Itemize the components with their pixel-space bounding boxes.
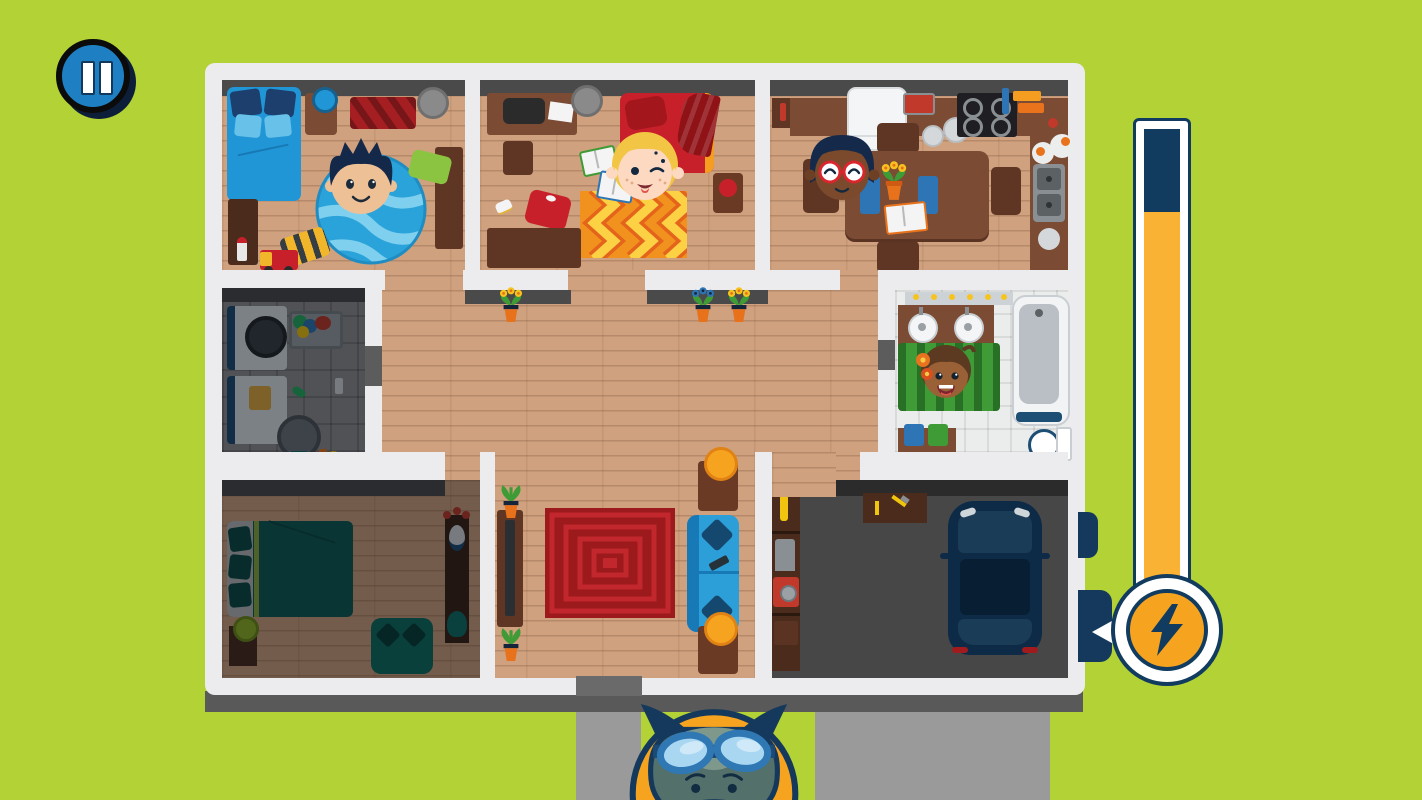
blue-bed <box>227 87 301 201</box>
bed-pillow <box>264 114 292 139</box>
blue-lamp <box>312 87 338 113</box>
driveway <box>815 712 1050 800</box>
interior-wall <box>878 270 1068 290</box>
potted-plant-top <box>498 483 524 519</box>
chair-north <box>877 123 919 153</box>
tv-console <box>497 510 523 627</box>
energy-meter <box>1133 118 1191 600</box>
room-bathroom[interactable] <box>895 290 1068 455</box>
red-striped-mat <box>350 97 416 129</box>
front-door[interactable] <box>576 676 642 696</box>
red-vacuum <box>773 577 799 607</box>
chair-south <box>877 241 919 273</box>
lightning-bolt-icon <box>1139 600 1195 660</box>
towel-bench <box>898 428 956 454</box>
interior-wall <box>480 452 495 678</box>
master-dark-overlay <box>222 480 480 678</box>
energy-badge-inner <box>1126 589 1208 671</box>
trash-bin <box>571 85 603 117</box>
room-girls-bedroom[interactable] <box>480 80 755 270</box>
laundry-door[interactable] <box>365 346 382 386</box>
flower-pot <box>877 161 911 201</box>
pause-button[interactable] <box>56 39 130 113</box>
mirror-with-lights <box>905 292 1013 305</box>
room-kitchen[interactable] <box>770 80 1068 270</box>
potted-plant-bottom <box>498 626 524 662</box>
side-table-lamp-bottom <box>698 626 738 674</box>
laundry-dark-overlay <box>222 288 365 452</box>
chair-east <box>991 167 1021 215</box>
nightstand <box>305 93 337 135</box>
sink-knob <box>1038 228 1060 250</box>
blanket-fold <box>237 144 288 157</box>
orange-boxes <box>1018 103 1044 113</box>
room-master-bedroom[interactable] <box>222 480 480 678</box>
double-sink <box>1033 164 1065 222</box>
garage-doorway[interactable] <box>772 452 836 497</box>
energy-track <box>1144 129 1180 589</box>
energy-badge[interactable] <box>1111 574 1223 686</box>
storage-rack <box>772 491 800 671</box>
room-kids-bedroom[interactable] <box>222 80 465 270</box>
red-stool <box>713 173 743 213</box>
open-book <box>884 201 929 235</box>
room-garage[interactable] <box>772 480 1068 678</box>
blue-bottle <box>1002 88 1009 114</box>
room-laundry[interactable] <box>222 288 365 452</box>
stool <box>503 141 533 175</box>
car <box>948 501 1042 655</box>
trash-bin <box>417 87 449 119</box>
side-table-lamp-top <box>698 461 738 511</box>
interior-wall <box>222 452 445 480</box>
interior-wall <box>755 452 772 678</box>
bathroom-door[interactable] <box>878 340 895 370</box>
bed-pillow <box>229 88 262 118</box>
toaster <box>903 93 935 115</box>
hall-flower-pot-yellow-2 <box>726 287 752 323</box>
character-grandma[interactable] <box>803 131 881 209</box>
interior-wall <box>465 80 480 270</box>
remote-control <box>708 555 729 571</box>
energy-empty <box>1144 129 1180 212</box>
character-baby[interactable] <box>911 338 981 408</box>
bed-pillow <box>264 88 297 117</box>
white-sock <box>494 198 513 215</box>
house <box>205 63 1085 695</box>
red-concentric-rug <box>545 508 675 618</box>
character-girl[interactable] <box>600 123 690 213</box>
tool-shelf <box>863 493 927 523</box>
plate <box>922 125 944 147</box>
energy-fill <box>1144 212 1180 589</box>
hall-flower-pot-blue <box>690 287 716 323</box>
pause-icon <box>99 61 113 95</box>
wall-socket-small <box>1078 512 1098 558</box>
fruit-bowl <box>1050 134 1074 158</box>
interior-wall <box>755 80 770 270</box>
storage-bench <box>487 228 581 268</box>
papers <box>548 101 574 122</box>
toy-shelf <box>228 199 258 265</box>
character-boy[interactable] <box>318 134 404 220</box>
character-dog-hero[interactable] <box>612 700 816 800</box>
toy-rocket-icon <box>237 237 247 261</box>
game-stage <box>0 0 1422 800</box>
school-bag <box>503 98 545 124</box>
desk <box>487 93 577 135</box>
bathtub <box>1012 295 1070 426</box>
bed-pillow <box>234 114 262 139</box>
hall-flower-pot-yellow <box>498 287 524 323</box>
pause-icon <box>81 61 95 95</box>
toy-truck <box>260 250 298 270</box>
red-knob <box>1048 118 1058 128</box>
red-tshirt <box>524 188 573 231</box>
interior-wall <box>860 452 1068 480</box>
interior-wall <box>222 270 385 290</box>
orange-boxes <box>1013 91 1041 101</box>
